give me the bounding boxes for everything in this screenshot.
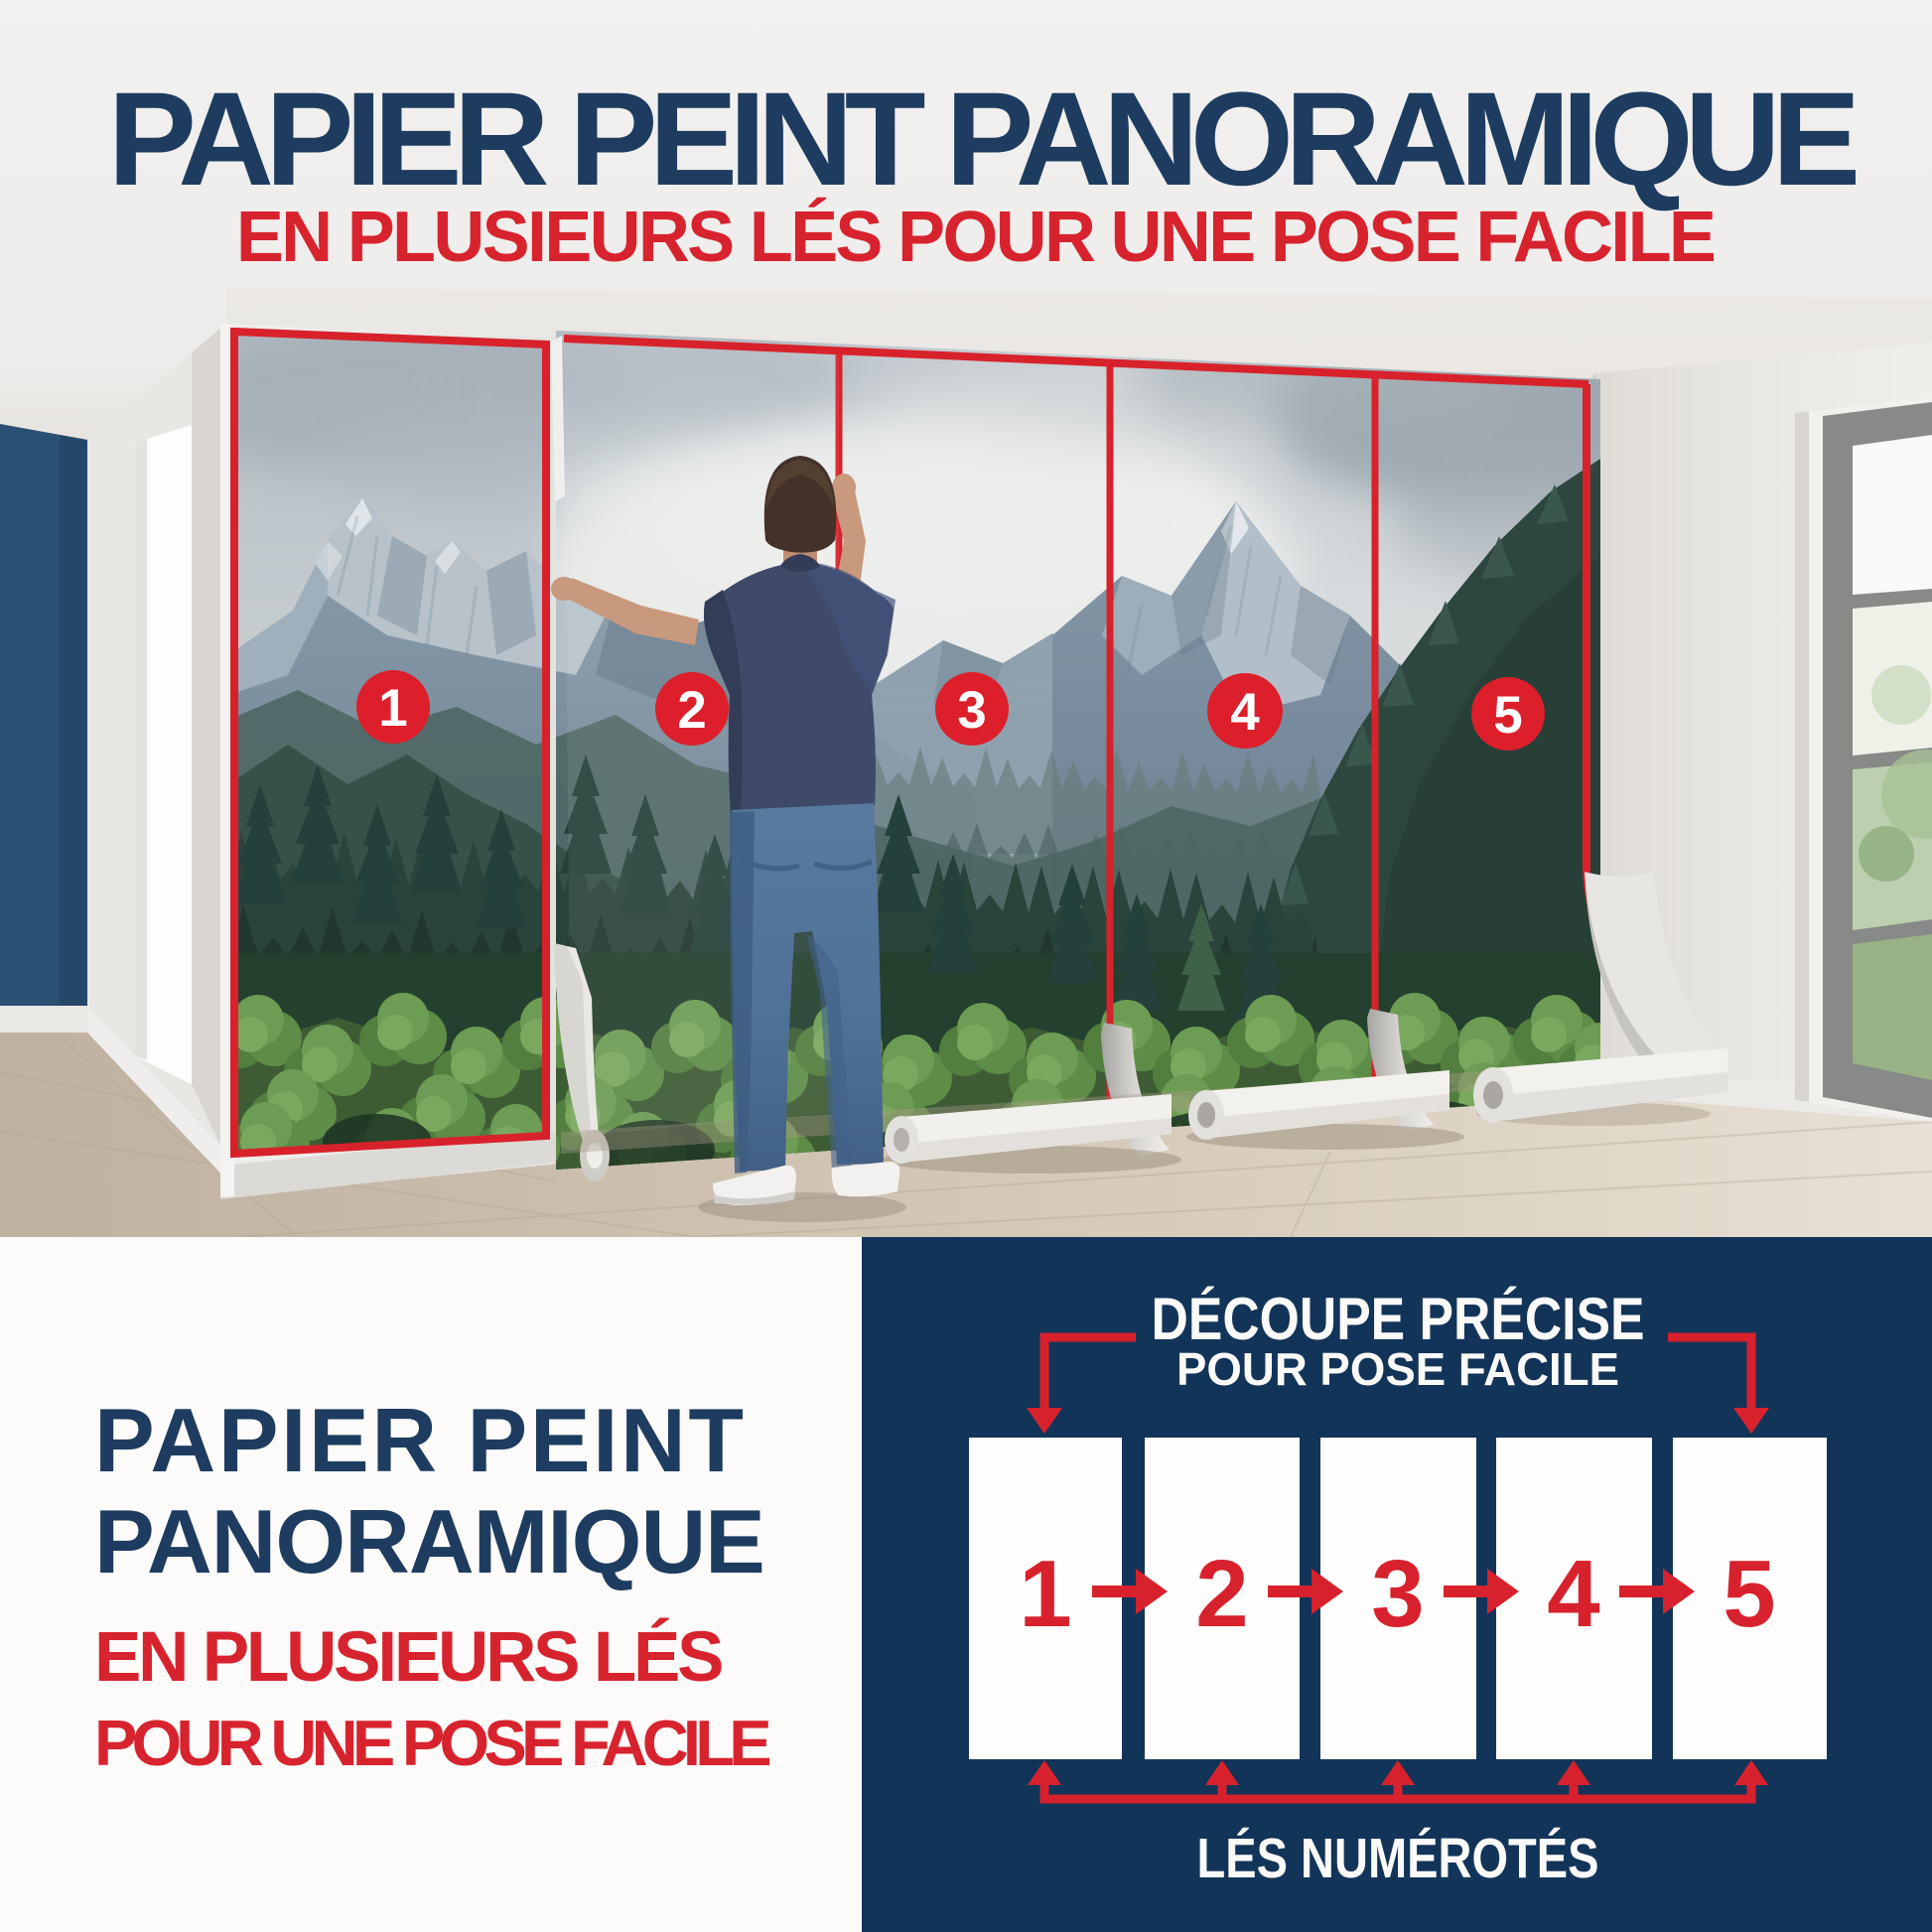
svg-text:2: 2 — [1195, 1541, 1248, 1647]
svg-text:4: 4 — [1547, 1541, 1599, 1647]
svg-text:DÉCOUPE PRÉCISE: DÉCOUPE PRÉCISE — [1152, 1286, 1645, 1352]
svg-text:5: 5 — [1493, 686, 1522, 745]
svg-text:2: 2 — [677, 681, 706, 740]
svg-text:4: 4 — [1230, 683, 1260, 742]
svg-text:5: 5 — [1723, 1541, 1775, 1647]
svg-text:POUR POSE FACILE: POUR POSE FACILE — [1176, 1343, 1619, 1395]
svg-text:1: 1 — [378, 679, 407, 738]
svg-text:1: 1 — [1019, 1541, 1071, 1647]
svg-text:3: 3 — [957, 681, 986, 740]
svg-text:3: 3 — [1371, 1541, 1424, 1647]
svg-text:LÉS NUMÉROTÉS: LÉS NUMÉROTÉS — [1197, 1827, 1599, 1890]
